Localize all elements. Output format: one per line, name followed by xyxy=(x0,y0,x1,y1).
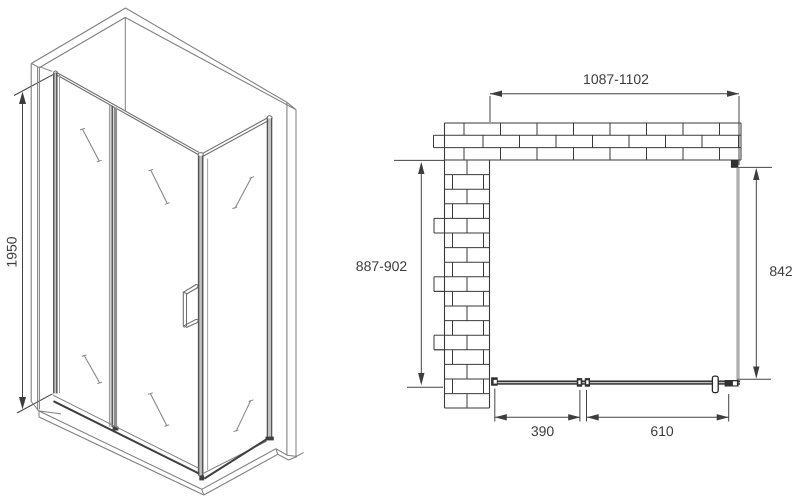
svg-text:610: 610 xyxy=(650,423,674,439)
svg-text:887-902: 887-902 xyxy=(356,258,408,274)
svg-text:1950: 1950 xyxy=(4,236,20,267)
svg-text:1087-1102: 1087-1102 xyxy=(583,71,649,87)
svg-text:390: 390 xyxy=(531,423,555,439)
svg-text:842: 842 xyxy=(769,263,793,279)
